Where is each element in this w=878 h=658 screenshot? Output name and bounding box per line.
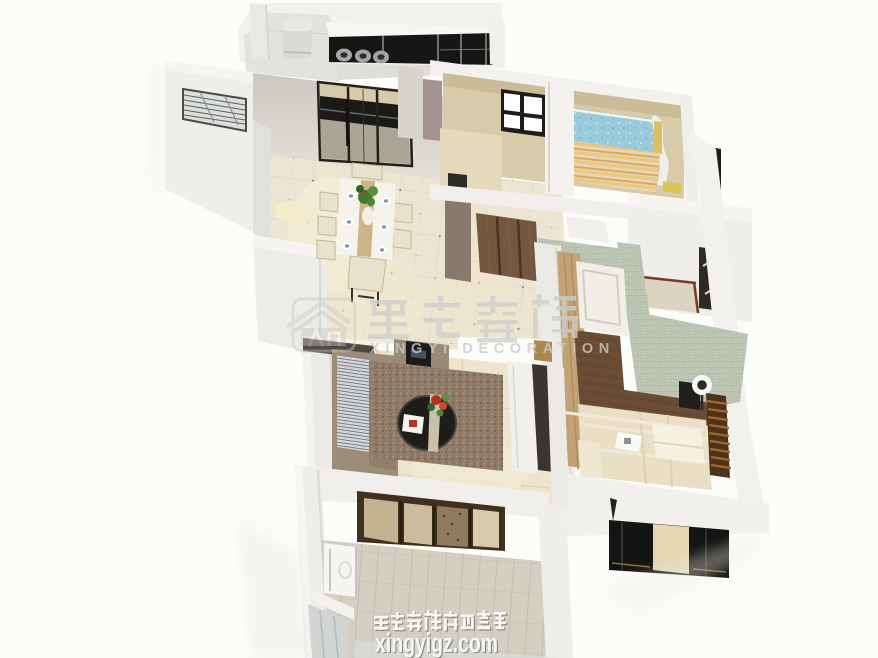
svg-text:xingyigz.com: xingyigz.com xyxy=(375,628,498,658)
svg-text:XINGYI DECORATION: XINGYI DECORATION xyxy=(370,341,615,357)
